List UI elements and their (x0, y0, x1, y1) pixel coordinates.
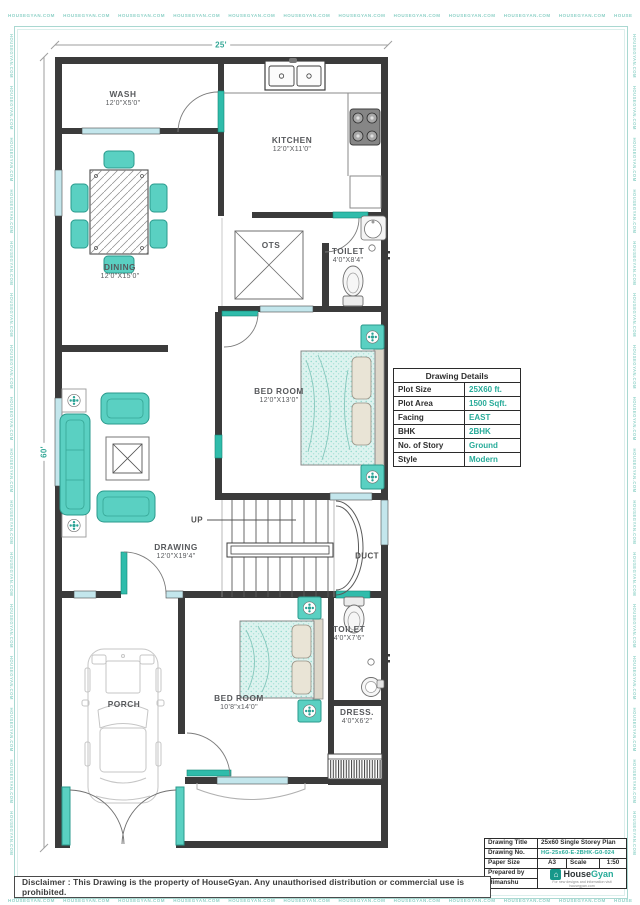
bed2-icon (240, 619, 323, 699)
details-value: 2BHK (465, 425, 521, 439)
brand-cell: ⌂ HouseGyan For new designs and informat… (538, 869, 627, 889)
details-value: Ground (465, 439, 521, 453)
scale-label: Scale (567, 859, 600, 869)
disclaimer-bar: Disclaimer : This Drawing is the propert… (14, 876, 491, 898)
dimension-height: 60' (40, 443, 49, 461)
bed1-icon (301, 349, 384, 467)
brand-name-gyan: Gyan (591, 869, 614, 879)
duct-curve (336, 501, 363, 595)
room-label-porch: PORCH (108, 700, 140, 710)
drawing-no-label: Drawing No. (485, 849, 538, 859)
scale-value: 1:50 (600, 859, 627, 869)
dining-set-icon (71, 151, 167, 273)
details-label: Plot Area (394, 397, 465, 411)
room-label-dining: DINING12'0"X15'0" (101, 263, 140, 281)
housegyan-logo-icon: ⌂ (550, 869, 561, 880)
dress-steps (328, 754, 382, 779)
stairs (207, 500, 334, 597)
floor-plan-page: HOUSEGYAN.COM HOUSEGYAN.COM HOUSEGYAN.CO… (0, 0, 640, 905)
room-label-toilet2: TOILET4'0"X7'6" (333, 625, 365, 643)
drawing-no-value: HG-25x60-E-2BHK-G0-024 (538, 849, 627, 859)
room-label-ots: OTS (262, 241, 281, 251)
details-value: EAST (465, 411, 521, 425)
title-block: Drawing Title 25x60 Single Storey Plan D… (484, 838, 627, 889)
ots-shaft (222, 218, 303, 306)
details-value: Modern (465, 453, 521, 467)
room-label-wash: WASH12'0"X5'0" (106, 90, 141, 108)
drawing-title-value: 25x60 Single Storey Plan (538, 839, 627, 849)
details-label: Plot Size (394, 383, 465, 397)
prepared-by-label: Prepared by (485, 869, 538, 879)
details-title: Drawing Details (394, 369, 521, 383)
details-label: Facing (394, 411, 465, 425)
room-label-kitchen: KITCHEN12'0"X11'0" (272, 136, 312, 154)
details-label: BHK (394, 425, 465, 439)
porch-gate (62, 787, 184, 845)
floor-plan-drawing (0, 0, 640, 905)
brand-tagline: For new designs and information visit ho… (541, 881, 623, 888)
kitchen-sink-icon (265, 58, 325, 90)
details-label: No. of Story (394, 439, 465, 453)
room-label-bedroom2: BED ROOM10'8"x14'0" (214, 694, 264, 712)
dimension-width: 25' (212, 41, 230, 50)
duct-label: DUCT (355, 552, 379, 561)
details-label: Style (394, 453, 465, 467)
room-label-dress: DRESS.4'0"X6'2" (340, 708, 374, 726)
drawing-title-label: Drawing Title (485, 839, 538, 849)
paper-size-value: A3 (538, 859, 567, 869)
details-value: 1500 Sqft. (465, 397, 521, 411)
brand-name-house: House (563, 869, 591, 879)
stairs-up-label: UP (191, 516, 203, 525)
room-label-bedroom1: BED ROOM12'0"X13'0" (254, 387, 304, 405)
prepared-by-value: Himanshu (485, 879, 538, 889)
details-value: 25X60 ft. (465, 383, 521, 397)
room-label-toilet1: TOILET4'0"X8'4" (332, 247, 364, 265)
sofa-set-icon (60, 389, 155, 537)
room-label-drawing: DRAWING12'0"X19'4" (154, 543, 198, 561)
car-icon (82, 649, 164, 803)
stove-icon (350, 109, 380, 145)
drawing-details-table: Drawing Details Plot Size 25X60 ft. Plot… (393, 368, 521, 467)
entry-step (197, 783, 305, 800)
paper-size-label: Paper Size (485, 859, 538, 869)
